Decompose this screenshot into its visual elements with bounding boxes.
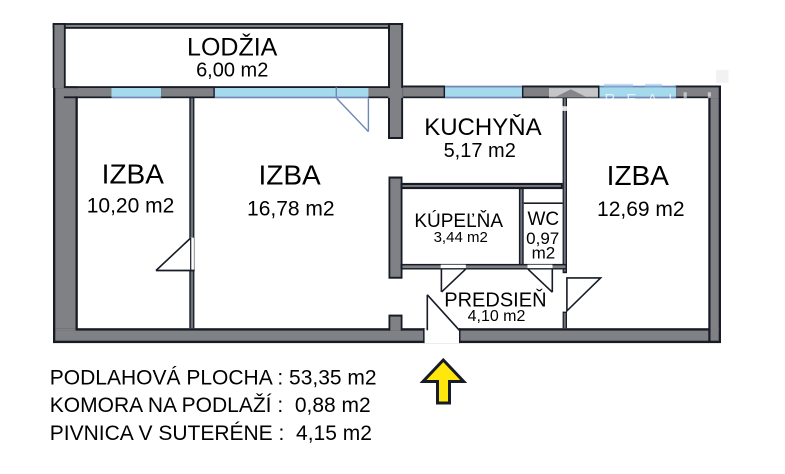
svg-text:KUCHYŇA: KUCHYŇA (424, 114, 541, 141)
svg-text:REAL: REAL (605, 91, 688, 108)
svg-text:KOMORA NA PODLAŽÍ : 0,88 m2: KOMORA NA PODLAŽÍ : 0,88 m2 (50, 394, 371, 417)
svg-text:16,78 m2: 16,78 m2 (247, 198, 335, 221)
svg-text:IZBA: IZBA (258, 159, 321, 190)
svg-text:6,00 m2: 6,00 m2 (196, 59, 268, 81)
svg-text:IZBA: IZBA (102, 159, 165, 190)
svg-text:PIVNICA V SUTERÉNE : 4,15 m2: PIVNICA V SUTERÉNE : 4,15 m2 (50, 422, 372, 445)
svg-text:10,20 m2: 10,20 m2 (87, 195, 175, 218)
svg-text:WC: WC (527, 209, 559, 230)
svg-text:LODŽIA: LODŽIA (187, 33, 278, 62)
svg-text:12,69 m2: 12,69 m2 (597, 198, 685, 221)
svg-text:IZBA: IZBA (607, 160, 670, 191)
svg-text:m2: m2 (532, 243, 556, 262)
svg-text:5,17 m2: 5,17 m2 (444, 140, 516, 162)
svg-text:3,44 m2: 3,44 m2 (434, 229, 488, 246)
svg-text:4,10 m2: 4,10 m2 (468, 308, 526, 325)
svg-text:PODLAHOVÁ PLOCHA : 53,35 m2: PODLAHOVÁ PLOCHA : 53,35 m2 (50, 366, 377, 389)
